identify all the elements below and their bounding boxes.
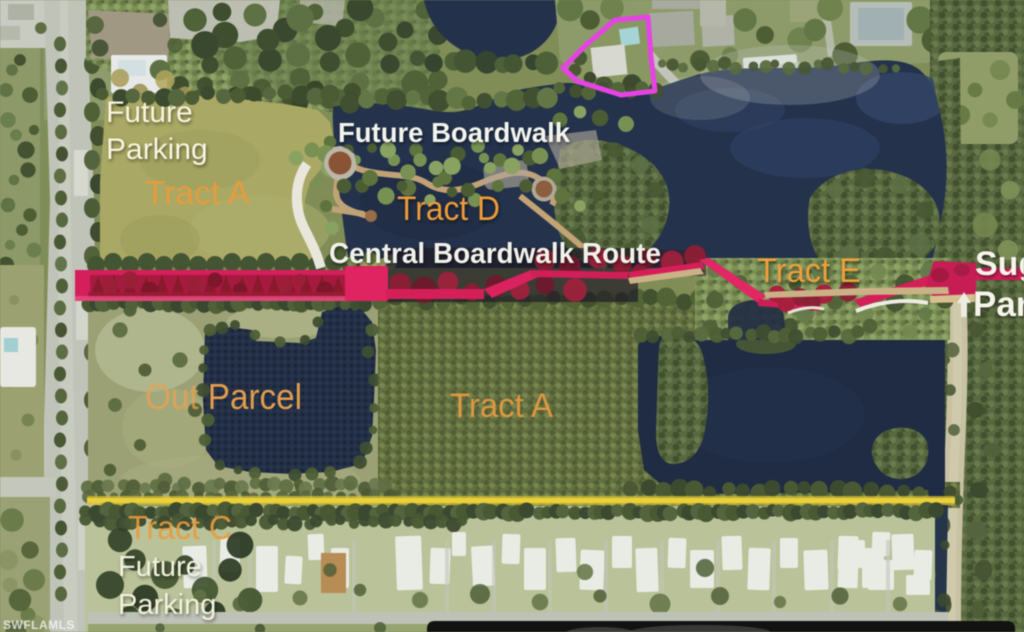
svg-text:Tract C: Tract C	[128, 509, 232, 546]
svg-text:Out Parcel: Out Parcel	[145, 376, 302, 417]
svg-text:Tract A: Tract A	[145, 174, 250, 211]
svg-text:Future: Future	[106, 96, 193, 129]
svg-text:Tract A: Tract A	[450, 387, 553, 425]
svg-text:Central Boardwalk Route: Central Boardwalk Route	[329, 238, 661, 270]
svg-text:Tract D: Tract D	[397, 190, 500, 228]
svg-text:Sug: Sug	[975, 245, 1024, 283]
svg-text:Future: Future	[118, 551, 202, 583]
svg-text:Future Boardwalk: Future Boardwalk	[338, 117, 570, 148]
svg-text:Par: Par	[973, 285, 1024, 324]
svg-text:Parking: Parking	[106, 133, 208, 166]
svg-text:Parking: Parking	[118, 589, 216, 621]
svg-text:Tract E: Tract E	[757, 252, 861, 290]
svg-text:SWFLAMLS: SWFLAMLS	[3, 618, 75, 632]
